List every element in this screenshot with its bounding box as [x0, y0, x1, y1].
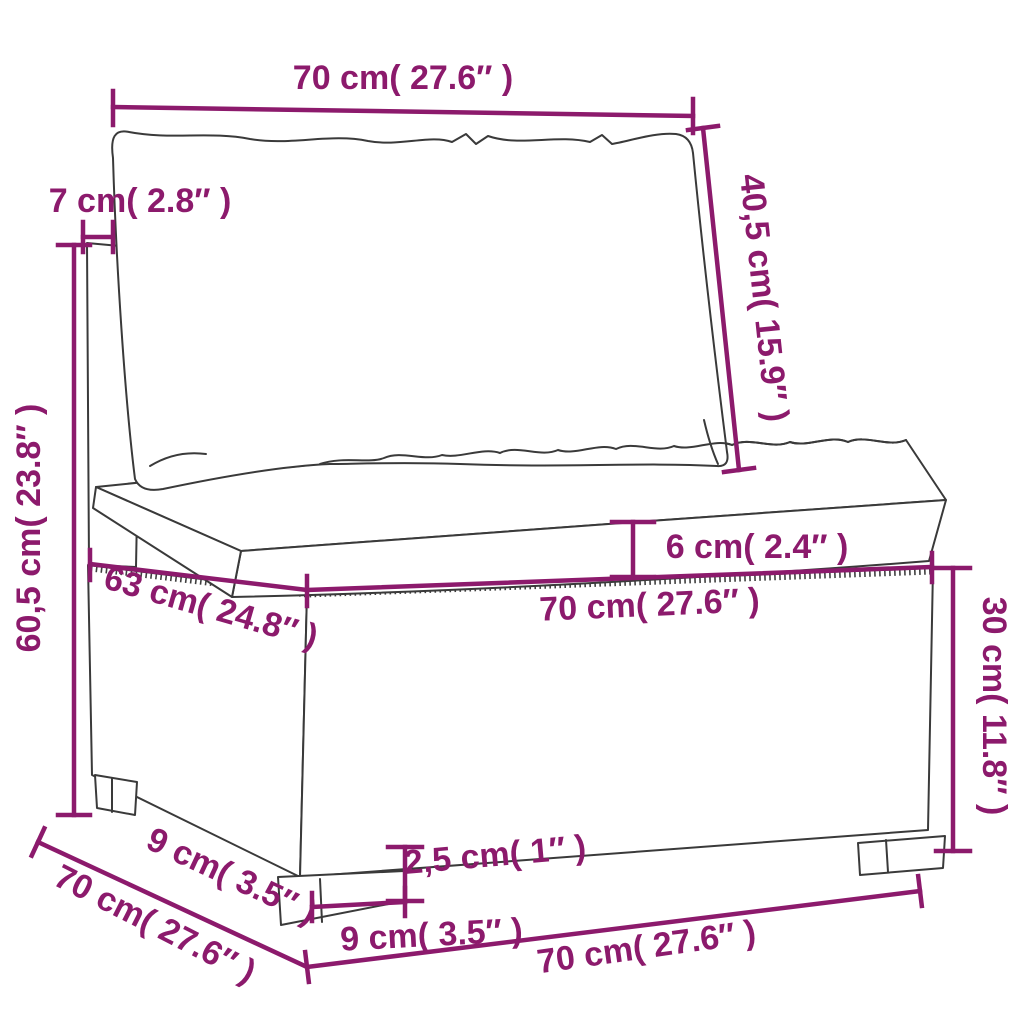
dim-total-height: 60,5 cm( 23.8″ ): [10, 245, 90, 815]
base-height-label: 30 cm( 11.8″ ): [975, 597, 1013, 816]
total-height-label: 60,5 cm( 23.8″ ): [10, 404, 48, 653]
back-cushion-height-label: 40,5 cm( 15.9″ ): [732, 172, 796, 423]
foot-right: [858, 836, 945, 875]
back-frame-thickness-label: 7 cm( 2.8″ ): [49, 182, 232, 220]
dim-base-height: 30 cm( 11.8″ ): [936, 568, 1013, 851]
foot-left: [95, 775, 137, 815]
dimension-diagram: 70 cm( 27.6″ ) 40,5 cm( 15.9″ ) 7 cm( 2.…: [0, 0, 1024, 1024]
dim-back-cushion-width: 70 cm( 27.6″ ): [113, 59, 693, 133]
sofa-dimension-drawing: 70 cm( 27.6″ ) 40,5 cm( 15.9″ ) 7 cm( 2.…: [0, 0, 1024, 1024]
back-cushion-width-label: 70 cm( 27.6″ ): [293, 59, 513, 97]
seat-cushion-thickness-label: 6 cm( 2.4″ ): [666, 528, 849, 566]
